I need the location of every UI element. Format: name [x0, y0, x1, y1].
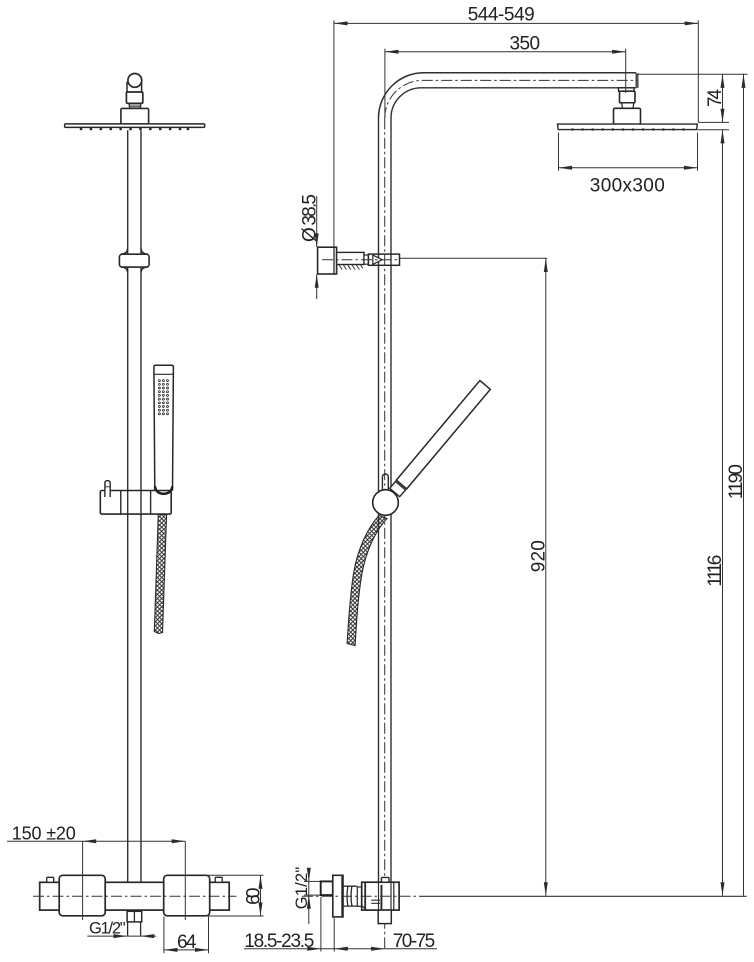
svg-text:74: 74: [705, 88, 726, 107]
svg-text:1190: 1190: [726, 464, 747, 499]
svg-text:920: 920: [529, 540, 550, 572]
svg-text:350: 350: [510, 34, 541, 55]
svg-text:64: 64: [177, 932, 197, 953]
svg-text:Ø 38.5: Ø 38.5: [299, 194, 320, 242]
svg-text:150 ±20: 150 ±20: [12, 823, 76, 843]
svg-text:18.5-23.5: 18.5-23.5: [244, 931, 314, 952]
svg-text:300x300: 300x300: [590, 176, 665, 197]
svg-text:70-75: 70-75: [393, 931, 436, 952]
svg-text:G1/2": G1/2": [293, 867, 311, 910]
svg-text:544-549: 544-549: [468, 5, 535, 26]
svg-text:60: 60: [243, 888, 264, 905]
svg-text:G1/2": G1/2": [89, 920, 126, 938]
svg-text:1116: 1116: [705, 555, 726, 587]
